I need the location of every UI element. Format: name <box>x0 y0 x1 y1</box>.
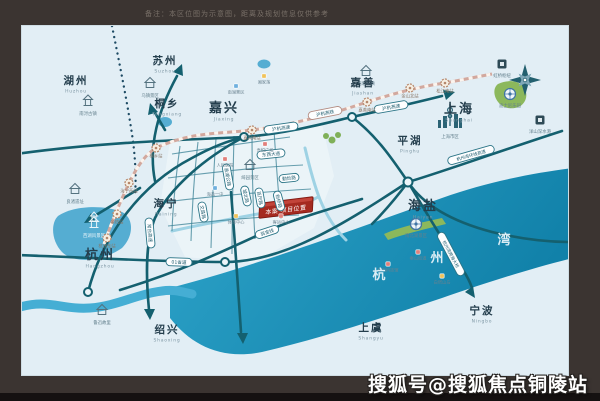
svg-text:桐乡: 桐乡 <box>155 97 180 110</box>
bay-name-char: 湾 <box>497 232 510 248</box>
svg-text:嘉善南站: 嘉善南站 <box>358 107 376 114</box>
svg-text:苏州: 苏州 <box>153 54 178 67</box>
city-label: 桐乡Tongxiang <box>151 97 182 118</box>
svg-text:Shanghai: Shanghai <box>445 118 472 124</box>
svg-text:嘉兴南站: 嘉兴南站 <box>243 135 261 142</box>
city-label: 平湖Pinghu <box>398 134 423 155</box>
svg-text:南北湖景区: 南北湖景区 <box>405 232 428 239</box>
city-label: 苏州Suzhou <box>153 54 178 75</box>
screenshot-frame: 备注：本区位图为示意图，距离及规划信息仅供参考 <box>0 0 600 401</box>
svg-text:嘉兴: 嘉兴 <box>208 100 239 116</box>
svg-text:Suzhou: Suzhou <box>154 69 175 75</box>
road-label: 勤俭路 <box>279 173 300 183</box>
svg-text:Shaoxing: Shaoxing <box>153 338 180 344</box>
svg-text:白塔山岛: 白塔山岛 <box>434 279 451 286</box>
svg-text:海宁: 海宁 <box>154 197 179 210</box>
svg-text:嘉善: 嘉善 <box>350 76 376 89</box>
svg-text:Jiashan: Jiashan <box>351 91 374 97</box>
svg-text:上海: 上海 <box>444 101 474 117</box>
svg-text:松江南站: 松江南站 <box>436 88 454 95</box>
svg-text:海盐一中: 海盐一中 <box>207 191 224 198</box>
svg-text:上海市区: 上海市区 <box>441 133 459 140</box>
map-canvas: 本案·项目位置 沪杭高速沪杭高速沪杭高铁杭州湾环线高速杭州湾跨海大桥常台高速01… <box>22 26 568 375</box>
svg-text:西湖风景区: 西湖风景区 <box>83 232 106 239</box>
city-label: 上虞Shangyu <box>358 321 383 342</box>
svg-text:平湖: 平湖 <box>398 134 423 147</box>
svg-text:湘家荡: 湘家荡 <box>258 79 271 86</box>
city-label: 杭州Hangzhou <box>85 247 115 270</box>
svg-text:鲁迅故里: 鲁迅故里 <box>93 319 111 326</box>
skyline-icon: 上海市区 <box>441 133 459 140</box>
svg-text:Haiyan: Haiyan <box>413 215 433 221</box>
svg-text:吾悦广场: 吾悦广场 <box>257 147 274 154</box>
city-label: 湖州Huzhou <box>64 74 89 95</box>
svg-text:Shangyu: Shangyu <box>358 336 383 342</box>
svg-text:Pinghu: Pinghu <box>400 149 420 155</box>
svg-text:良渚遗址: 良渚遗址 <box>66 198 84 205</box>
sohu-watermark: 搜狐号@搜狐焦点铜陵站 <box>368 370 588 397</box>
svg-text:余杭站: 余杭站 <box>111 219 125 226</box>
svg-text:Ningbo: Ningbo <box>472 319 493 325</box>
city-label: 海宁Haining <box>154 197 179 218</box>
svg-text:南浔古镇: 南浔古镇 <box>79 110 97 117</box>
svg-text:人民医院: 人民医院 <box>217 162 235 169</box>
bay-name-char: 杭 <box>372 267 385 283</box>
svg-text:Haining: Haining <box>155 212 178 218</box>
svg-text:海盐: 海盐 <box>408 198 438 214</box>
svg-text:Jiaxing: Jiaxing <box>213 117 235 123</box>
svg-text:南湖景区: 南湖景区 <box>228 89 245 96</box>
svg-text:海宁西站: 海宁西站 <box>120 188 138 195</box>
svg-text:客运中心: 客运中心 <box>273 219 291 226</box>
svg-text:Hangzhou: Hangzhou <box>85 264 114 270</box>
svg-text:秦山街道: 秦山街道 <box>410 255 428 262</box>
small-lake-north <box>258 60 271 69</box>
svg-text:Huzhou: Huzhou <box>65 89 87 95</box>
svg-text:杭州: 杭州 <box>85 247 115 263</box>
svg-text:洋山深水港: 洋山深水港 <box>529 128 552 135</box>
city-label: 上海Shanghai <box>444 101 474 124</box>
city-label: 宁波Ningbo <box>470 304 495 325</box>
svg-text:Tongxiang: Tongxiang <box>151 112 182 118</box>
svg-text:桐乡站: 桐乡站 <box>150 153 164 160</box>
svg-text:湖州: 湖州 <box>64 74 89 87</box>
city-label: 绍兴Shaoxing <box>153 323 180 344</box>
svg-text:迪士尼乐园: 迪士尼乐园 <box>499 102 522 109</box>
svg-text:金山北站: 金山北站 <box>401 93 419 100</box>
map-disclaimer-caption: 备注：本区位图为示意图，距离及规划信息仅供参考 <box>145 9 329 19</box>
svg-text:绍兴: 绍兴 <box>155 323 180 336</box>
road-label: 01省道 <box>166 258 192 267</box>
svg-text:虹桥枢纽: 虹桥枢纽 <box>493 72 511 79</box>
svg-text:上虞: 上虞 <box>359 321 384 334</box>
region-map: 本案·项目位置 沪杭高速沪杭高速沪杭高铁杭州湾环线高速杭州湾跨海大桥常台高速01… <box>22 26 568 375</box>
bay-name-char: 州 <box>429 251 443 266</box>
city-label: 嘉善Jiashan <box>350 76 376 97</box>
svg-text:绮园景区: 绮园景区 <box>241 174 259 181</box>
svg-text:宁波: 宁波 <box>470 304 495 317</box>
svg-text:体育中心: 体育中心 <box>228 219 246 226</box>
